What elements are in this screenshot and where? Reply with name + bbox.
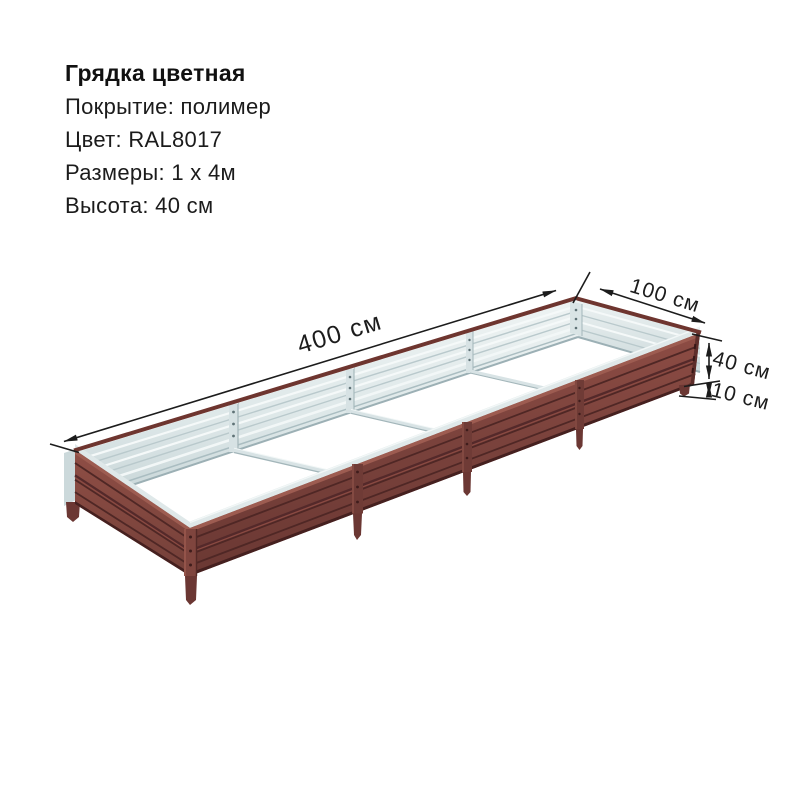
garden-bed-illustration: 400 см 100 см 40 см 10 см bbox=[0, 0, 800, 800]
corner-post-front-left bbox=[184, 529, 197, 605]
wall-post bbox=[462, 422, 472, 496]
left-corner-sliver bbox=[64, 449, 76, 506]
wall-leg bbox=[353, 514, 362, 541]
wall-leg bbox=[463, 472, 471, 496]
wall-post bbox=[575, 380, 584, 450]
product-card: Грядка цветная Покрытие: полимер Цвет: R… bbox=[0, 0, 800, 800]
divider-post bbox=[346, 367, 354, 413]
divider-post bbox=[466, 331, 473, 373]
wall-post bbox=[352, 464, 363, 540]
label-length: 400 см bbox=[294, 307, 386, 359]
corner-leg bbox=[185, 576, 197, 605]
label-clearance: 10 см bbox=[709, 378, 772, 415]
wall-leg bbox=[576, 429, 583, 450]
corner-bracket bbox=[570, 301, 582, 336]
divider-post bbox=[229, 402, 238, 452]
